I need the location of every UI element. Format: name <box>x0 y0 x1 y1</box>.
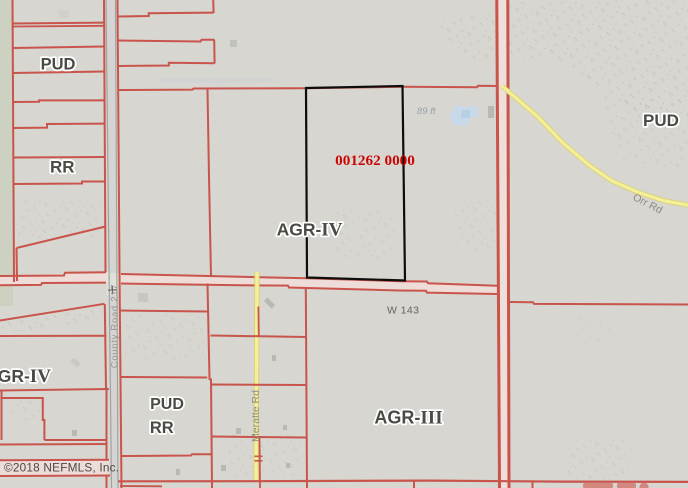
svg-text:©2018 NEFMLS, Inc.: ©2018 NEFMLS, Inc. <box>4 461 119 475</box>
svg-text:County Road 217: County Road 217 <box>110 284 121 368</box>
svg-text:Meratte Rd: Meratte Rd <box>250 390 262 442</box>
svg-text:PUD: PUD <box>643 111 679 130</box>
svg-text:RR: RR <box>50 158 75 177</box>
svg-text:W 143: W 143 <box>387 305 419 317</box>
svg-text:PUD: PUD <box>41 56 76 74</box>
svg-text:RR: RR <box>150 419 174 437</box>
svg-text:AGR-III: AGR-III <box>374 408 442 429</box>
svg-text:89 ft: 89 ft <box>417 106 436 117</box>
svg-text:PUD: PUD <box>150 396 184 413</box>
svg-text:001262 0000: 001262 0000 <box>335 152 415 169</box>
svg-text:AGR-IV: AGR-IV <box>0 366 51 387</box>
svg-text:AGR-IV: AGR-IV <box>277 220 343 241</box>
